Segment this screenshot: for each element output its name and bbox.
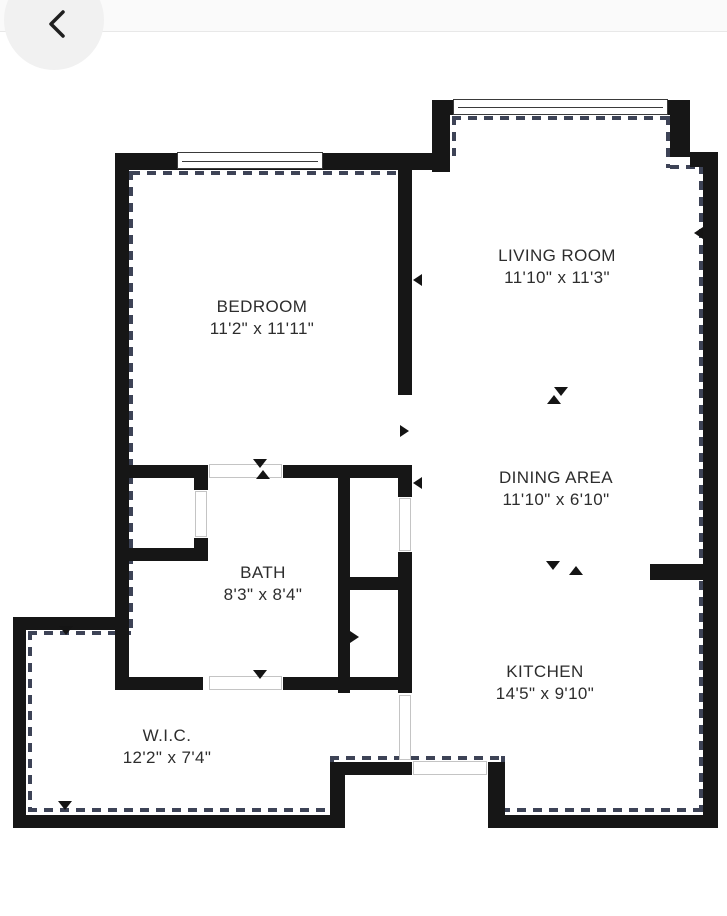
- dashed-outline: [452, 116, 670, 120]
- dashed-outline: [501, 808, 702, 812]
- room-name: LIVING ROOM: [447, 245, 667, 267]
- room-label-wic: W.I.C. 12'2" x 7'4": [57, 725, 277, 769]
- wall-bedroom-divider: [398, 170, 412, 395]
- hall-door: [399, 695, 411, 760]
- room-dimensions: 11'10" x 11'3": [447, 267, 667, 289]
- room-label-living-room: LIVING ROOM 11'10" x 11'3": [447, 245, 667, 289]
- wall-living-topleft: [432, 100, 450, 172]
- wall-divider-stub-upper: [398, 465, 412, 497]
- bath-door-bottom: [209, 676, 282, 690]
- room-dimensions: 11'10" x 6'10": [446, 489, 666, 511]
- dashed-outline: [131, 171, 398, 175]
- dashed-outline: [28, 808, 331, 812]
- room-label-kitchen: KITCHEN 14'5" x 9'10": [435, 661, 655, 705]
- door-marker-icon: [413, 274, 422, 286]
- entry-door: [413, 761, 487, 775]
- wall-divider-lower: [398, 552, 412, 693]
- door-marker-icon: [59, 626, 73, 635]
- room-name: W.I.C.: [57, 725, 277, 747]
- wall-hall-bottom-right: [283, 677, 412, 690]
- living-room-window: [453, 99, 668, 115]
- room-label-dining-area: DINING AREA 11'10" x 6'10": [446, 467, 666, 511]
- wall-alcove-stub-bottom: [194, 538, 208, 561]
- door-marker-icon: [58, 801, 72, 810]
- wall-notch-top: [337, 762, 412, 775]
- door-marker-icon: [547, 395, 561, 404]
- wall-topright-column: [670, 100, 690, 157]
- door-marker-icon: [546, 561, 560, 570]
- wall-bath-top-right: [283, 465, 412, 478]
- wall-wic-left-exterior: [13, 617, 26, 828]
- door-marker-icon: [400, 425, 409, 437]
- door-marker-icon: [413, 477, 422, 489]
- room-label-bath: BATH 8'3" x 8'4": [153, 562, 373, 606]
- dashed-outline: [452, 116, 456, 156]
- room-label-bedroom: BEDROOM 11'2" x 11'11": [152, 296, 372, 340]
- dashed-outline: [129, 171, 133, 634]
- room-dimensions: 12'2" x 7'4": [57, 747, 277, 769]
- door-marker-icon: [569, 566, 583, 575]
- wall-kitchen-bottom: [488, 815, 718, 828]
- door-marker-icon: [256, 470, 270, 479]
- door-marker-icon: [350, 631, 359, 643]
- room-dimensions: 14'5" x 9'10": [435, 683, 655, 705]
- door-marker-icon: [253, 459, 267, 468]
- room-dimensions: 8'3" x 8'4": [153, 584, 373, 606]
- dashed-outline: [330, 756, 505, 760]
- wall-alcove-bottom: [115, 548, 203, 561]
- room-name: BATH: [153, 562, 373, 584]
- wall-kitchen-dining-stub: [650, 564, 703, 580]
- room-name: BEDROOM: [152, 296, 372, 318]
- alcove-closet-door: [195, 491, 207, 537]
- door-marker-icon: [253, 670, 267, 679]
- wall-wic-bottom: [13, 815, 345, 828]
- door-marker-icon: [694, 227, 703, 239]
- wall-alcove-stub-top: [194, 465, 208, 490]
- bath-door-top: [209, 464, 282, 478]
- wall-bath-top-left: [115, 465, 203, 478]
- bedroom-window: [177, 152, 323, 169]
- floor-plan-image[interactable]: BEDROOM 11'2" x 11'11" LIVING ROOM 11'10…: [0, 0, 727, 916]
- room-dimensions: 11'2" x 11'11": [152, 318, 372, 340]
- wall-right-exterior: [703, 152, 718, 828]
- closet-door: [399, 498, 411, 551]
- room-name: DINING AREA: [446, 467, 666, 489]
- dashed-outline: [28, 631, 32, 812]
- room-name: KITCHEN: [435, 661, 655, 683]
- wall-left-exterior: [115, 153, 129, 690]
- wall-hall-bottom-left: [115, 677, 203, 690]
